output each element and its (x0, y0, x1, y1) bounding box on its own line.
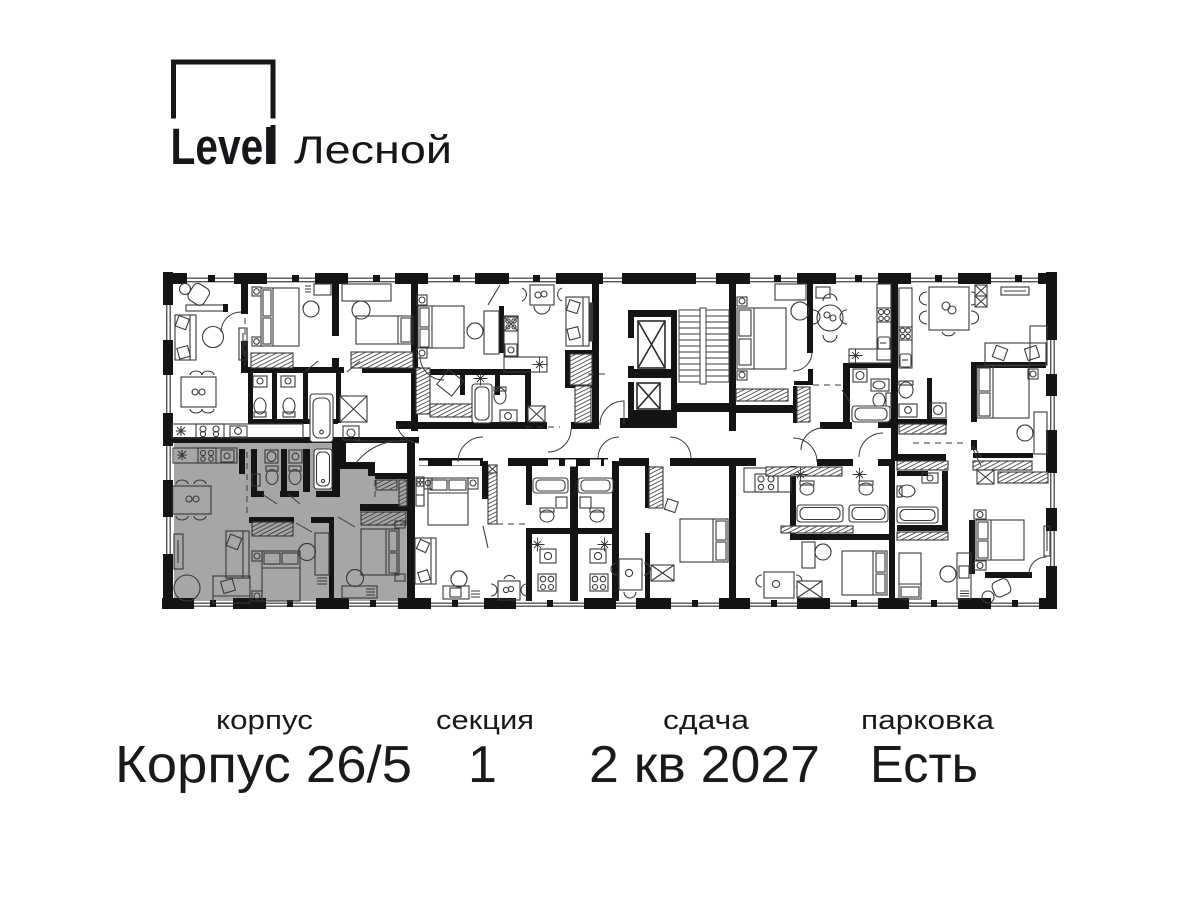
svg-text:Корпус 26/5: Корпус 26/5 (115, 736, 412, 794)
svg-text:2 кв 2027: 2 кв 2027 (589, 736, 820, 794)
svg-text:корпус: корпус (216, 705, 313, 735)
svg-text:1: 1 (468, 736, 497, 794)
svg-text:Лесной: Лесной (294, 129, 452, 172)
svg-text:секция: секция (436, 705, 534, 735)
svg-text:сдача: сдача (663, 705, 750, 735)
svg-text:парковка: парковка (861, 705, 995, 735)
svg-text:Есть: Есть (870, 736, 978, 794)
svg-text:Level: Level (171, 118, 275, 175)
